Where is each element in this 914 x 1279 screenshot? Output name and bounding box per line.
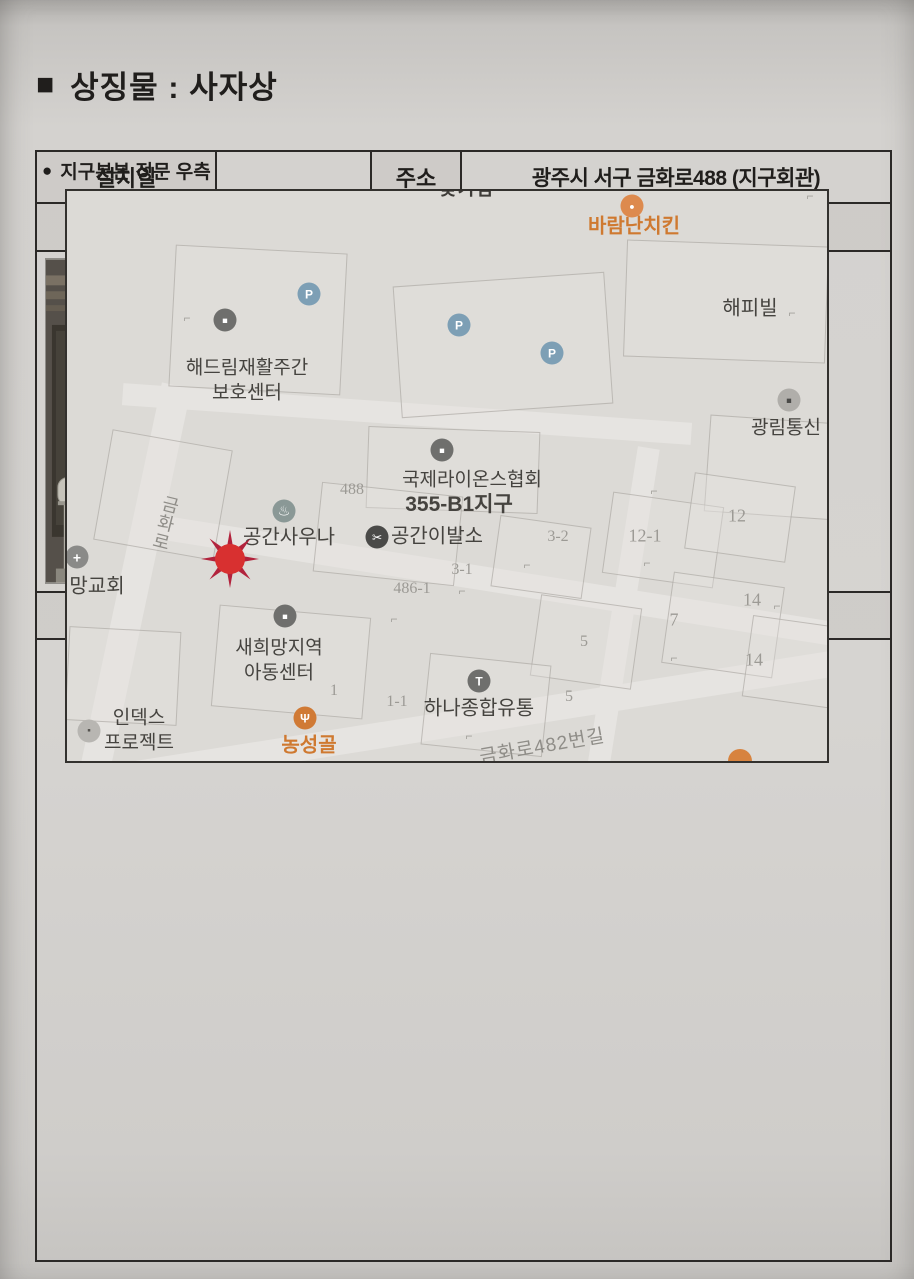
title-square-icon: ■ xyxy=(36,70,54,100)
haedream-center-icon: ■ xyxy=(214,309,237,332)
location-marker-icon xyxy=(198,527,262,591)
parcel-corner-mark: ⌐ xyxy=(788,306,795,320)
bullet-icon: ● xyxy=(42,161,52,181)
parking-3-icon: P xyxy=(541,342,564,365)
map-parcel xyxy=(490,515,591,599)
parcel-number: 14 xyxy=(745,650,763,671)
parcel-corner-mark: ⌐ xyxy=(650,484,657,498)
parking-1-icon: P xyxy=(298,283,321,306)
saehuimang-childrens-center-icon: ■ xyxy=(274,605,297,628)
parcel-corner-mark: ⌐ xyxy=(806,189,813,203)
nongseonggol-label: 농성골 xyxy=(281,733,336,760)
lions-club-district-label: 355-B1지구 xyxy=(405,491,513,519)
parcel-corner-mark: ⌐ xyxy=(458,584,465,598)
parcel-number: 5 xyxy=(580,633,588,651)
map-caption: ● 지구본본 정문 우측 xyxy=(42,157,211,184)
parcel-number: 7 xyxy=(670,610,679,631)
gonggan-sauna-icon: ♨ xyxy=(273,500,296,523)
map-caption-text: 지구본본 정문 우측 xyxy=(60,157,210,184)
title-text: 상징물 : 사자상 xyxy=(70,62,278,107)
index-project-icon: ▪ xyxy=(78,720,101,743)
parcel-number: 12 xyxy=(728,506,746,527)
info-table: 설치일 주소 광주시 서구 금화로488 (지구회관) 상징물 사진 상징물 내… xyxy=(35,150,892,1262)
parcel-number: 14 xyxy=(743,590,761,611)
gonggan-barber-icon: ✂ xyxy=(366,526,389,549)
gwanglim-telecom-label: 광림통신 xyxy=(751,415,821,440)
index-project-label: 인덱스프로젝트 xyxy=(104,706,174,757)
parcel-number: 1-1 xyxy=(386,693,407,711)
street-label: 꽃가람 xyxy=(439,189,494,201)
parcel-corner-mark: ⌐ xyxy=(390,612,397,626)
map: ⌐⌐⌐⌐⌐⌐⌐⌐⌐⌐⌐4883-212-1123-1486-1147514511… xyxy=(65,189,829,763)
parcel-number: 5 xyxy=(565,688,573,706)
map-parcel xyxy=(393,272,614,418)
parcel-corner-mark: ⌐ xyxy=(643,556,650,570)
parcel-corner-mark: ⌐ xyxy=(523,558,530,572)
saehuimang-childrens-center-label: 새희망지역아동센터 xyxy=(235,636,322,687)
gonggan-barber-label: 공간이발소 xyxy=(391,524,483,551)
mang-church-icon: + xyxy=(66,546,89,569)
mang-church-label: 망교회 xyxy=(69,574,124,601)
map-cell: ● 지구본본 정문 우측 ⌐⌐⌐⌐⌐⌐⌐⌐⌐⌐⌐4883-212-1123-14… xyxy=(37,640,890,1260)
scanned-document-page: ■ 상징물 : 사자상 설치일 주소 광주시 서구 금화로488 (지구회관) … xyxy=(0,0,914,1279)
parcel-number: 486-1 xyxy=(393,580,430,598)
lions-club-label: 국제라이온스협회 xyxy=(402,467,542,492)
partial-poi-icon xyxy=(728,749,752,763)
gwanglim-telecom-icon: ■ xyxy=(778,389,801,412)
haedream-center-label: 해드림재활주간보호센터 xyxy=(186,356,308,407)
parking-2-icon: P xyxy=(448,314,471,337)
parcel-corner-mark: ⌐ xyxy=(773,599,780,613)
hana-distribution-label: 하나종합유통 xyxy=(424,696,534,723)
baramnan-chicken-label: 바람난치킨 xyxy=(588,214,680,241)
parcel-corner-mark: ⌐ xyxy=(670,651,677,665)
parcel-number: 488 xyxy=(340,481,364,499)
parcel-corner-mark: ⌐ xyxy=(183,311,190,325)
parcel-number: 12-1 xyxy=(629,526,662,547)
parcel-number: 3-2 xyxy=(547,528,568,546)
nongseonggol-icon: Ψ xyxy=(294,707,317,730)
happy-ville-label: 해피빌 xyxy=(722,296,777,323)
parcel-number: 1 xyxy=(330,682,338,700)
lions-club-icon: ■ xyxy=(431,439,454,462)
hana-distribution-icon: T xyxy=(468,670,491,693)
parcel-corner-mark: ⌐ xyxy=(465,729,472,743)
page-title: ■ 상징물 : 사자상 xyxy=(36,62,278,107)
parcel-number: 3-1 xyxy=(451,561,472,579)
